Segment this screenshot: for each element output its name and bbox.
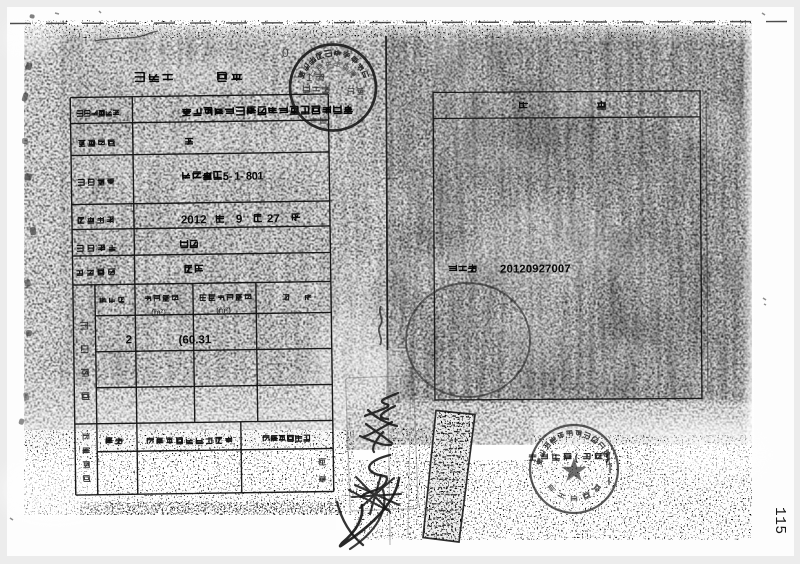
svg-text:9: 9 <box>236 214 243 226</box>
svg-text:20120927007: 20120927007 <box>500 263 571 275</box>
svg-text:-: - <box>240 171 244 183</box>
svg-text:0: 0 <box>282 46 289 60</box>
svg-text:(60.31: (60.31 <box>179 334 212 346</box>
svg-text:1: 1 <box>257 170 263 182</box>
svg-text:2: 2 <box>126 334 133 346</box>
svg-text:-: - <box>229 171 233 183</box>
svg-text:2012: 2012 <box>181 214 207 226</box>
svg-text:115: 115 <box>771 507 787 535</box>
svg-text:(m²): (m²) <box>151 308 166 317</box>
svg-text:27: 27 <box>267 213 280 225</box>
svg-text:(m²): (m²) <box>216 306 231 315</box>
